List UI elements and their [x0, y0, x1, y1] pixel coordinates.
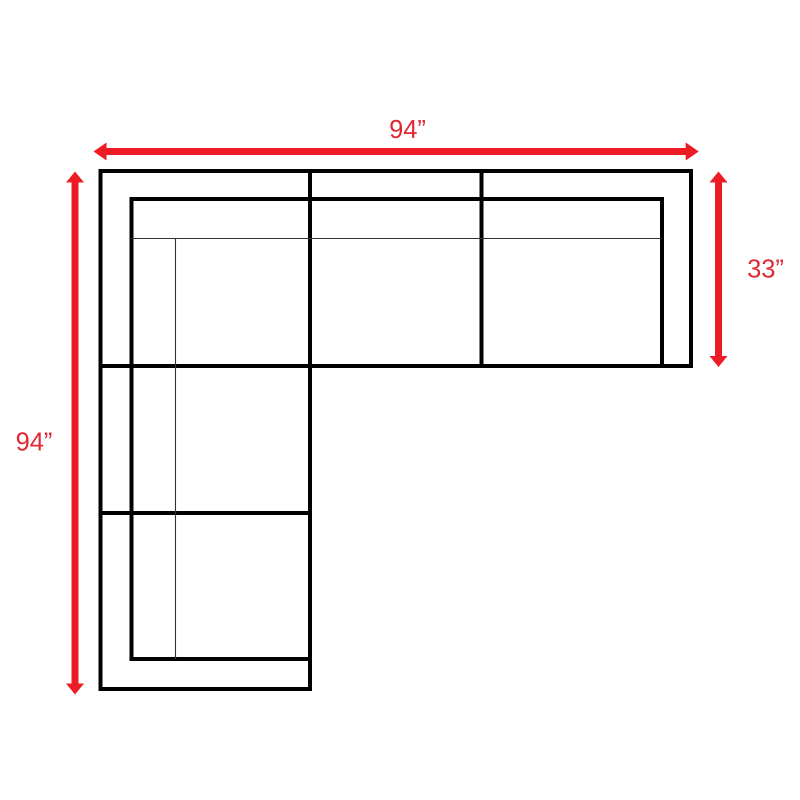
svg-text:94”: 94” — [389, 116, 426, 144]
svg-text:94”: 94” — [16, 429, 53, 457]
svg-text:33”: 33” — [747, 256, 784, 284]
